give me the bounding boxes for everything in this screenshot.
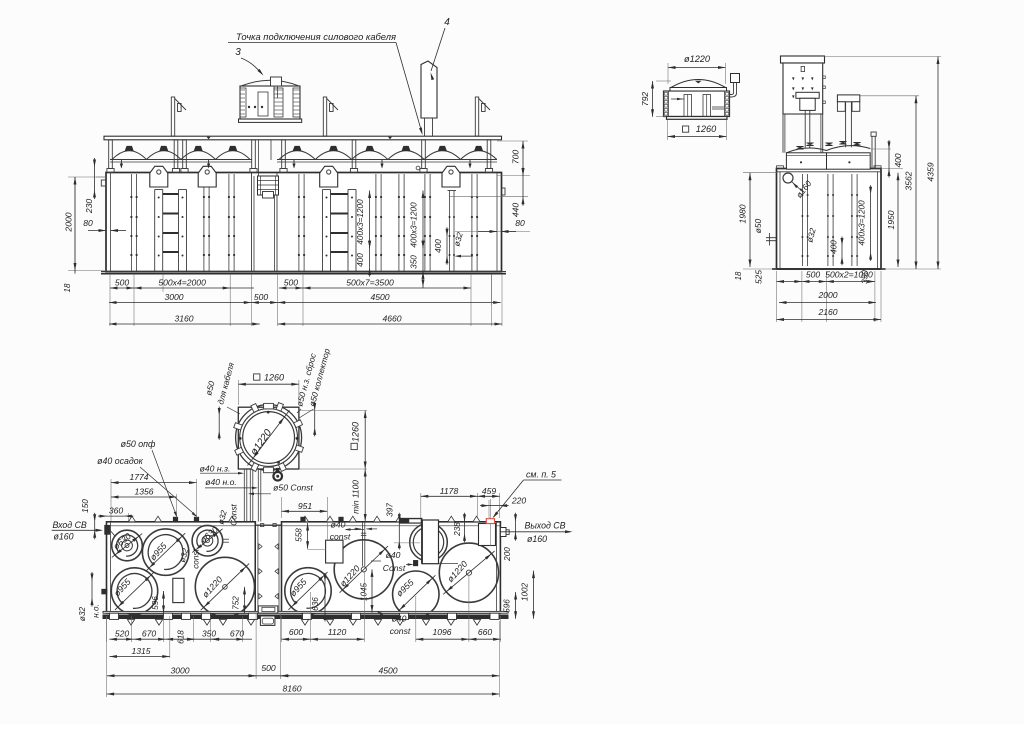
svg-text:400: 400	[434, 239, 443, 253]
svg-text:18: 18	[63, 283, 72, 292]
svg-text:459: 459	[482, 486, 497, 496]
svg-text:Const: Const	[230, 504, 239, 526]
svg-text:500x7=3500: 500x7=3500	[346, 278, 394, 288]
svg-text:1260: 1260	[696, 124, 717, 134]
svg-text:500: 500	[261, 663, 276, 673]
svg-text:ø160: ø160	[527, 534, 547, 544]
svg-text:1774: 1774	[129, 472, 148, 482]
svg-text:ø40: ø40	[331, 520, 346, 530]
svg-text:18: 18	[734, 271, 743, 280]
svg-text:1002: 1002	[521, 582, 530, 601]
svg-text:792: 792	[640, 92, 650, 107]
svg-text:1045: 1045	[360, 582, 369, 601]
svg-text:3000: 3000	[164, 292, 183, 302]
svg-text:ø32: ø32	[78, 606, 87, 621]
svg-text:4500: 4500	[370, 292, 389, 302]
svg-text:230: 230	[84, 199, 94, 215]
svg-text:8160: 8160	[282, 684, 301, 694]
svg-text:660: 660	[478, 627, 493, 637]
svg-text:1950: 1950	[886, 210, 896, 229]
svg-text:618: 618	[177, 630, 186, 644]
svg-text:ø40: ø40	[386, 550, 401, 560]
svg-text:1120: 1120	[328, 627, 347, 637]
svg-text:360: 360	[109, 506, 124, 516]
svg-text:600: 600	[289, 627, 304, 637]
svg-text:400x3=1200: 400x3=1200	[410, 202, 419, 248]
svg-text:440: 440	[511, 203, 521, 218]
svg-text:200: 200	[503, 547, 512, 562]
svg-text:2000: 2000	[64, 212, 74, 232]
svg-text:350: 350	[861, 270, 870, 284]
svg-text:350: 350	[410, 255, 419, 269]
svg-text:596: 596	[503, 599, 512, 613]
svg-text:4500: 4500	[378, 665, 397, 675]
svg-text:525: 525	[754, 270, 764, 284]
svg-text:4: 4	[444, 17, 450, 28]
svg-text:400: 400	[893, 153, 903, 167]
svg-text:ø160: ø160	[54, 532, 74, 542]
svg-text:400: 400	[830, 240, 839, 254]
svg-text:3: 3	[235, 47, 241, 58]
svg-text:350: 350	[202, 629, 216, 639]
svg-text:558: 558	[295, 528, 304, 542]
svg-text:400x3=1200: 400x3=1200	[858, 200, 867, 246]
svg-text:220: 220	[511, 496, 527, 506]
svg-text:const: const	[390, 626, 411, 636]
svg-text:670: 670	[230, 629, 245, 639]
svg-text:500: 500	[806, 270, 821, 280]
svg-text:1356: 1356	[134, 487, 153, 497]
svg-text:752: 752	[232, 596, 241, 610]
svg-text:ø40 осадок: ø40 осадок	[97, 456, 144, 466]
svg-text:ø50 Const: ø50 Const	[273, 483, 313, 493]
svg-text:const: const	[330, 532, 351, 542]
svg-text:4359: 4359	[926, 162, 936, 181]
svg-text:Точка подключения силового каб: Точка подключения силового кабеля	[236, 31, 396, 42]
svg-text:596: 596	[151, 596, 160, 610]
svg-text:ø50: ø50	[753, 218, 763, 233]
svg-text:ø1220: ø1220	[684, 54, 711, 64]
svg-text:150: 150	[81, 499, 90, 513]
svg-text:700: 700	[511, 150, 521, 165]
svg-text:1315: 1315	[131, 646, 150, 656]
svg-text:ø40 н.о.: ø40 н.о.	[205, 477, 236, 487]
svg-text:1260: 1260	[351, 422, 361, 442]
svg-text:const: const	[192, 548, 201, 568]
svg-text:670: 670	[142, 629, 157, 639]
svg-text:3562: 3562	[904, 171, 914, 190]
svg-text:80: 80	[83, 218, 93, 228]
svg-text:Const: Const	[383, 563, 406, 573]
svg-text:951: 951	[298, 501, 313, 511]
svg-text:н.о.: н.о.	[92, 604, 101, 618]
svg-text:2160: 2160	[817, 307, 837, 317]
svg-text:1178: 1178	[440, 486, 459, 496]
svg-text:Вход СВ: Вход СВ	[53, 520, 87, 530]
svg-text:min 1100: min 1100	[351, 480, 361, 514]
svg-text:500: 500	[254, 292, 269, 302]
svg-text:1260: 1260	[264, 373, 284, 383]
svg-text:1980: 1980	[738, 204, 748, 223]
svg-text:см. п. 5: см. п. 5	[526, 470, 556, 480]
svg-text:520: 520	[115, 629, 130, 639]
svg-text:80: 80	[515, 218, 525, 228]
svg-text:500: 500	[284, 278, 299, 288]
svg-text:Выход СВ: Выход СВ	[524, 521, 565, 531]
svg-text:3000: 3000	[170, 665, 189, 675]
svg-text:4660: 4660	[382, 314, 401, 324]
svg-text:ø40 н.з.: ø40 н.з.	[200, 464, 231, 474]
svg-text:2000: 2000	[817, 290, 837, 300]
svg-text:400: 400	[356, 253, 365, 267]
svg-text:500x4=2000: 500x4=2000	[158, 278, 206, 288]
svg-text:3160: 3160	[174, 314, 193, 324]
svg-text:636: 636	[311, 597, 320, 611]
svg-text:ø50 опф: ø50 опф	[121, 439, 156, 449]
svg-text:400x3=1200: 400x3=1200	[356, 199, 365, 245]
svg-text:238: 238	[453, 522, 462, 537]
svg-text:ø40: ø40	[392, 614, 407, 624]
svg-text:1096: 1096	[432, 627, 451, 637]
svg-text:397: 397	[386, 503, 395, 517]
svg-text:500: 500	[115, 278, 130, 288]
